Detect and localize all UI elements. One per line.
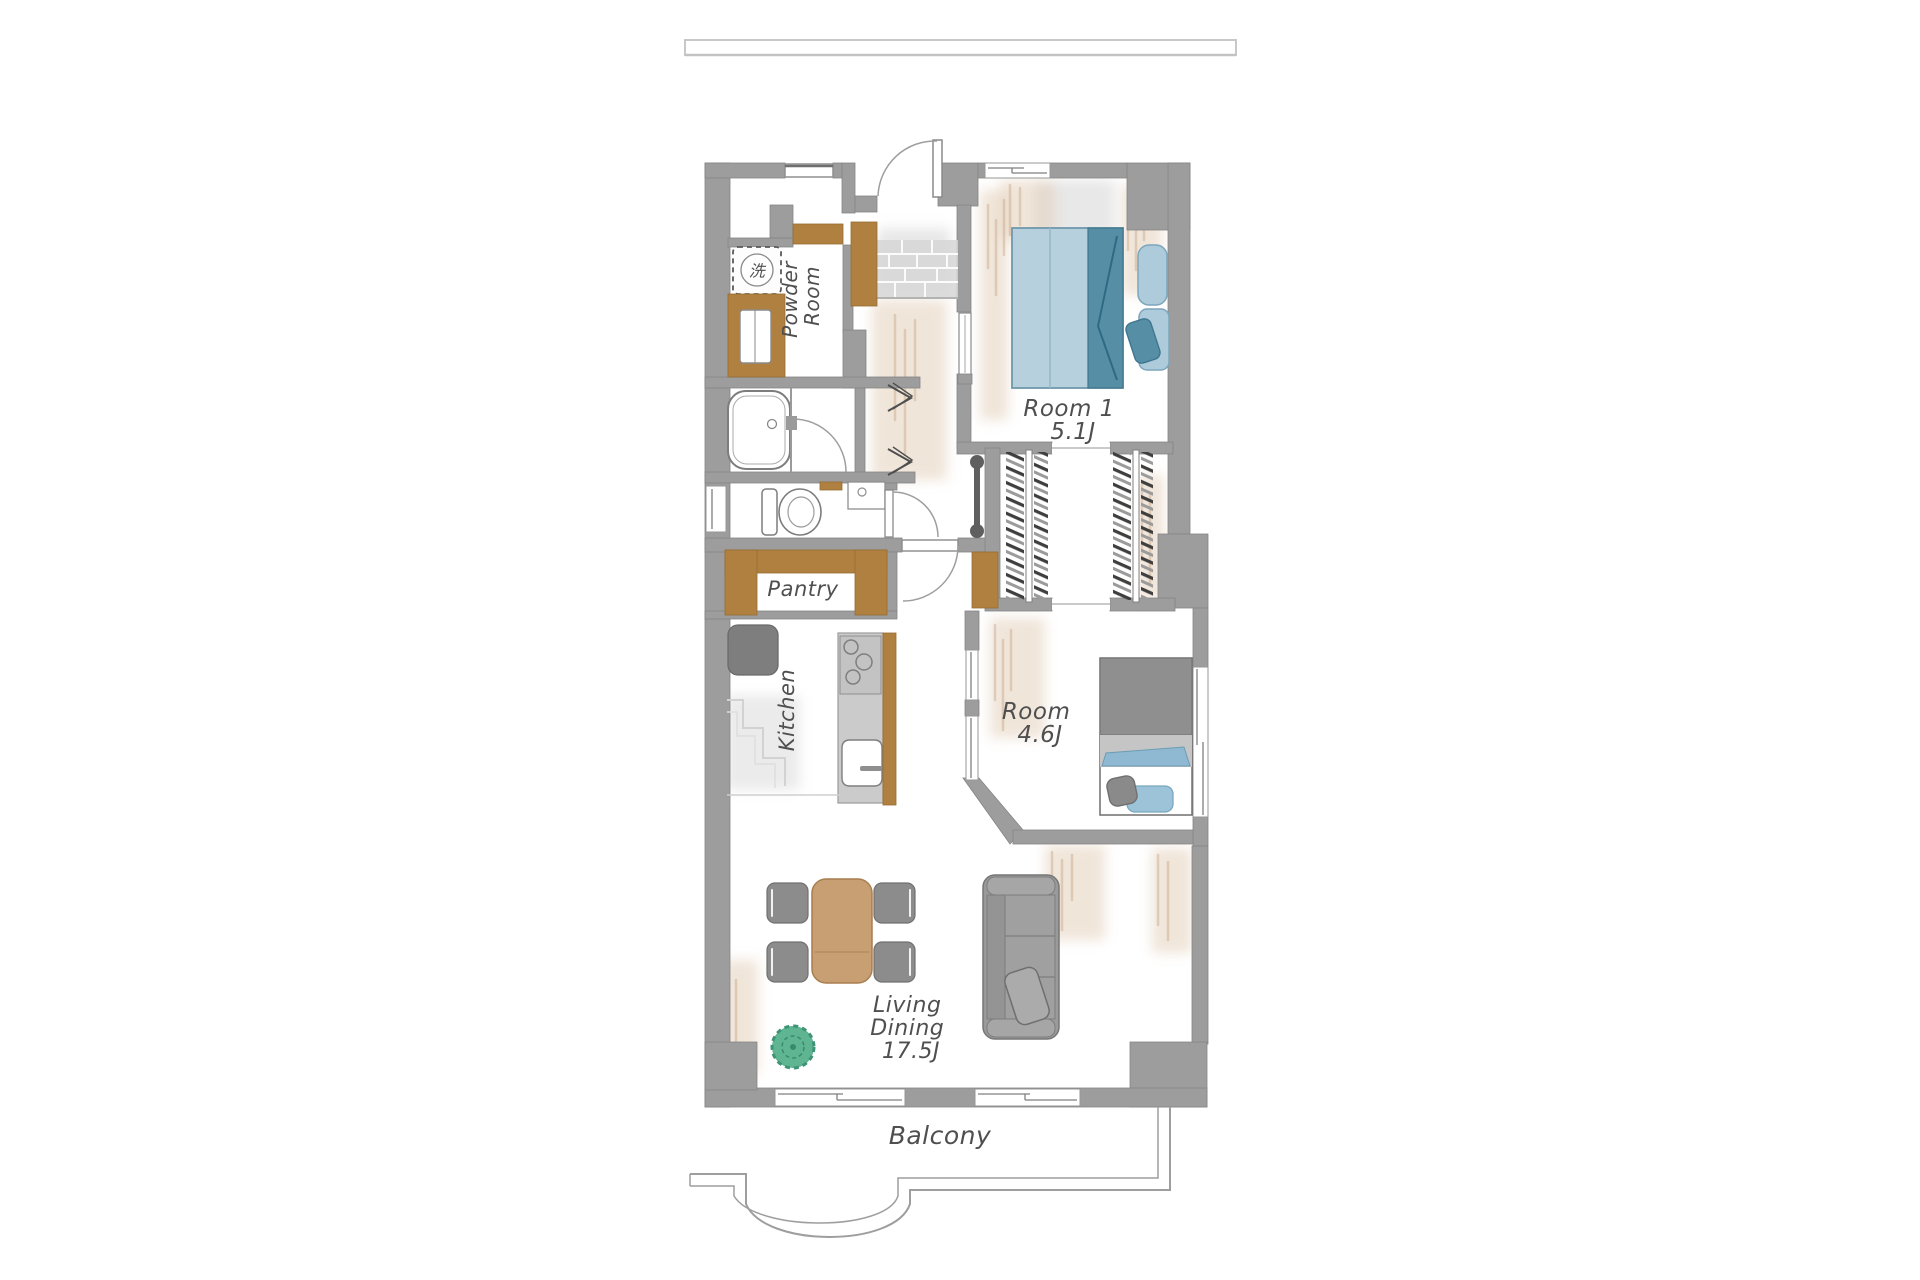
room1-label: Room 1 5.1J xyxy=(1023,396,1122,445)
entrance-door-swing-arc xyxy=(878,141,937,196)
hanger-rail-right xyxy=(1133,450,1139,602)
walk-in-closet xyxy=(1006,450,1153,602)
toilet-bowl xyxy=(779,489,821,535)
sofa-backrest xyxy=(987,895,1005,1019)
toilet-hand-sink xyxy=(848,482,885,509)
wall-right-lower xyxy=(1192,846,1208,1044)
dining-chair xyxy=(767,942,808,982)
refrigerator xyxy=(728,625,778,675)
bed-cushion-gray xyxy=(1105,774,1138,807)
room2-east-window xyxy=(1193,667,1208,817)
balcony-window-right xyxy=(975,1089,1080,1106)
bathtub xyxy=(728,391,790,469)
entrance xyxy=(851,140,958,306)
wall-right-upper xyxy=(1168,163,1190,534)
toilet-window xyxy=(706,486,726,532)
powder-room-shelf xyxy=(793,224,843,244)
toilet-room xyxy=(762,482,938,537)
faucet-icon xyxy=(860,766,882,771)
balcony: Balcony xyxy=(690,1107,1170,1237)
potted-plant xyxy=(772,1026,814,1068)
room2-label: Room 4.6J xyxy=(1002,699,1078,748)
washing-machine-kanji: 洗 xyxy=(749,262,767,281)
room1-sliding-door xyxy=(958,313,972,384)
closet-opening-bottom xyxy=(1052,599,1110,610)
toilet-door-arc xyxy=(893,492,938,537)
hangers xyxy=(1113,452,1131,600)
wall-pillar-bottom-left xyxy=(705,1042,757,1090)
hall-cabinet xyxy=(972,552,998,608)
hangers xyxy=(1141,452,1153,600)
dining-chair xyxy=(767,883,808,923)
entrance-door-leaf xyxy=(933,140,942,197)
hangers xyxy=(1034,452,1048,600)
dining-chair xyxy=(874,883,915,923)
hanger-rail-left xyxy=(1026,450,1032,602)
shower-mixer-icon xyxy=(786,416,797,430)
pantry-shelf-left xyxy=(725,550,757,615)
ld-door-arc xyxy=(903,546,958,601)
room1-top-window xyxy=(985,163,1050,178)
ld-door-leaf xyxy=(902,540,958,551)
bed-pillow xyxy=(1138,245,1167,305)
vanity xyxy=(728,294,785,377)
living-dining: Living Dining 17.5J xyxy=(767,875,1059,1068)
balcony-window-left xyxy=(775,1089,905,1106)
toilet-door-leaf xyxy=(885,490,893,537)
corridor-bar xyxy=(685,40,1236,55)
living-dining-label: Living Dining 17.5J xyxy=(870,993,952,1064)
stove xyxy=(840,636,881,694)
pantry-label: Pantry xyxy=(767,577,838,601)
single-bed xyxy=(1100,658,1192,815)
floor-plan-canvas: 洗 Powder Room xyxy=(0,0,1920,1280)
sofa xyxy=(983,875,1059,1039)
balcony-label: Balcony xyxy=(889,1121,992,1150)
bathroom-door-arc xyxy=(793,419,846,472)
meter-box-window xyxy=(785,164,833,177)
dining-set xyxy=(767,879,915,983)
washing-machine-icon: 洗 xyxy=(733,247,781,294)
sofa-armrest xyxy=(987,877,1055,895)
double-bed xyxy=(1012,228,1123,388)
pantry-shelf-right xyxy=(855,550,887,615)
kitchen-sink xyxy=(842,740,882,786)
floor-plan: 洗 Powder Room xyxy=(0,0,1920,1280)
dining-chair xyxy=(874,942,915,982)
shoe-cabinet xyxy=(851,222,877,306)
kitchen-label: Kitchen xyxy=(775,669,799,751)
hangers xyxy=(1006,452,1024,600)
toilet-paper-shelf xyxy=(820,482,842,490)
counter-wood-edge xyxy=(883,633,896,805)
powder-room-label: Powder Room xyxy=(778,254,824,338)
genkan-tile-floor xyxy=(877,240,958,298)
wall-left xyxy=(705,163,730,1107)
toilet-tank xyxy=(762,489,777,535)
bathroom xyxy=(728,388,846,472)
wall-entrance-pillar xyxy=(938,163,978,206)
room1: Room 1 5.1J xyxy=(1012,228,1169,445)
dining-table xyxy=(812,879,872,983)
pantry: Pantry xyxy=(725,550,887,615)
